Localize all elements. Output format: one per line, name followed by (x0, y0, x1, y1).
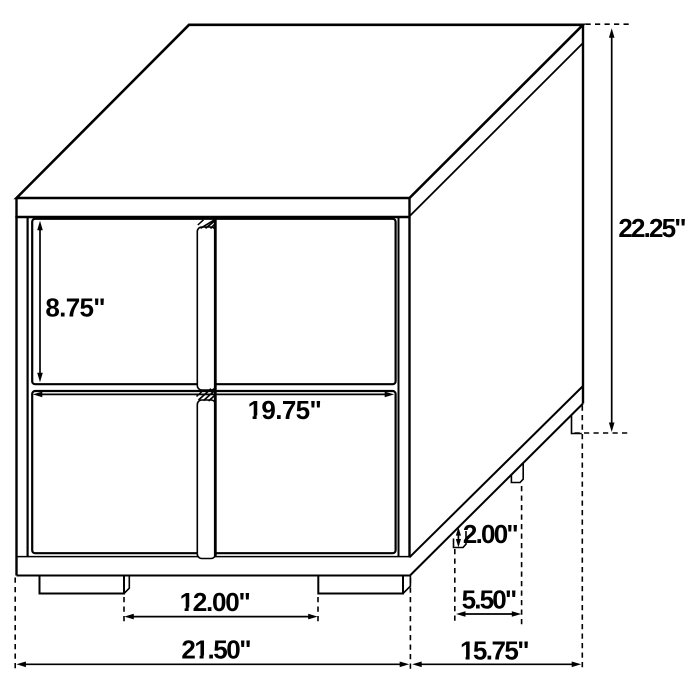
svg-text:5.50": 5.50" (462, 585, 518, 615)
svg-text:8.75": 8.75" (45, 293, 105, 323)
svg-text:12.00": 12.00" (180, 587, 251, 617)
svg-text:21.50": 21.50" (181, 635, 251, 665)
svg-text:15.75": 15.75" (460, 636, 530, 666)
svg-text:19.75": 19.75" (248, 395, 322, 425)
svg-text:22.25": 22.25" (618, 213, 686, 243)
svg-text:2.00": 2.00" (463, 519, 519, 549)
